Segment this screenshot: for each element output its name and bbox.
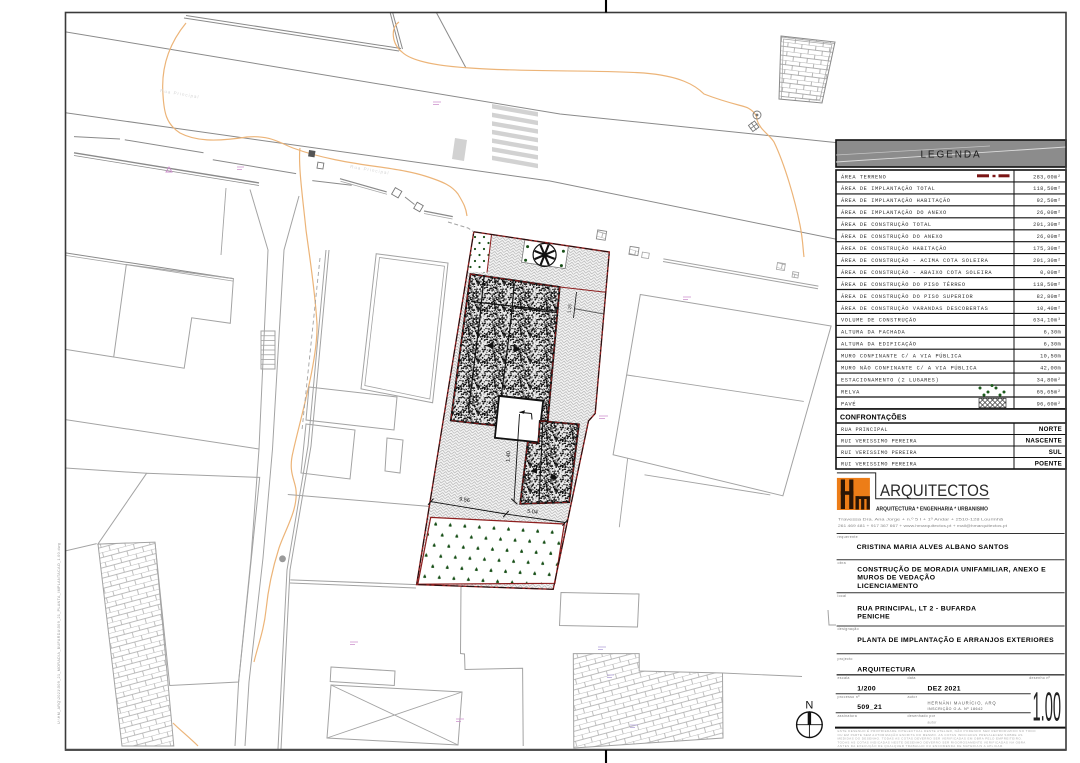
svg-text:96,60m²: 96,60m² xyxy=(1037,401,1061,407)
svg-text:ÁREA DE CONSTRUÇÃO DO PISO TÉR: ÁREA DE CONSTRUÇÃO DO PISO TÉRREO xyxy=(841,281,966,288)
svg-text:INSCRIÇÃO O.A. Nº 18642: INSCRIÇÃO O.A. Nº 18642 xyxy=(928,706,984,711)
svg-text:ANTES DA EXECUÇÃO DE QUALQUER: ANTES DA EXECUÇÃO DE QUALQUER TRABALHO O… xyxy=(838,743,1004,748)
svg-text:ARQUITECTOS: ARQUITECTOS xyxy=(880,481,989,500)
svg-text:634,10m³: 634,10m³ xyxy=(1033,318,1061,324)
svg-text:VOLUME DE CONSTRUÇÃO: VOLUME DE CONSTRUÇÃO xyxy=(841,317,917,324)
svg-text:ÁREA DE CONSTRUÇÃO VARANDAS DE: ÁREA DE CONSTRUÇÃO VARANDAS DESCOBERTAS xyxy=(841,305,988,312)
svg-text:6,30m: 6,30m xyxy=(1044,342,1061,348)
svg-text:RUA PRINCIPAL, LT 2 - BUFARDA: RUA PRINCIPAL, LT 2 - BUFARDA xyxy=(857,605,976,612)
svg-text:509_21: 509_21 xyxy=(857,704,882,711)
svg-text:RUA PRINCIPAL: RUA PRINCIPAL xyxy=(841,427,888,433)
svg-text:ARQUITECTURA: ARQUITECTURA xyxy=(857,667,916,674)
svg-text:1.40: 1.40 xyxy=(506,451,513,462)
svg-text:ALTURA DA EDIFICAÇÃO: ALTURA DA EDIFICAÇÃO xyxy=(841,341,917,348)
svg-text:82,80m²: 82,80m² xyxy=(1037,294,1061,300)
svg-text:ÁREA DE CONSTRUÇÃO DO ANEXO: ÁREA DE CONSTRUÇÃO DO ANEXO xyxy=(841,233,943,240)
svg-text:designação: designação xyxy=(838,627,859,631)
svg-text:CONSTRUÇÃO DE MORADIA UNIFAMIL: CONSTRUÇÃO DE MORADIA UNIFAMILIAR, ANEXO… xyxy=(857,564,1046,573)
svg-text:processo nº: processo nº xyxy=(838,695,861,699)
svg-text:CONFRONTAÇÕES: CONFRONTAÇÕES xyxy=(840,413,907,422)
svg-text:SUL: SUL xyxy=(1049,449,1062,456)
svg-text:1/200: 1/200 xyxy=(857,685,876,692)
svg-text:201,30m²: 201,30m² xyxy=(1033,222,1061,228)
svg-text:6,30m: 6,30m xyxy=(1044,330,1061,336)
svg-text:10,40m²: 10,40m² xyxy=(1037,306,1061,312)
svg-text:obra: obra xyxy=(838,561,846,565)
svg-text:NASCENTE: NASCENTE xyxy=(1026,438,1062,445)
svg-text:ÁREA DE CONSTRUÇÃO - ABAIXO CO: ÁREA DE CONSTRUÇÃO - ABAIXO COTA SOLEIRA xyxy=(841,269,992,276)
svg-text:U:\HM_ARQ\2021\509_21_MORADIA_: U:\HM_ARQ\2021\509_21_MORADIA_BUFARDA\50… xyxy=(57,543,61,724)
svg-text:ÁREA DE CONSTRUÇÃO DO PISO SUP: ÁREA DE CONSTRUÇÃO DO PISO SUPERIOR xyxy=(841,293,973,300)
svg-text:RELVA: RELVA xyxy=(841,389,860,395)
svg-text:CRISTINA MARIA ALVES ALBANO SA: CRISTINA MARIA ALVES ALBANO SANTOS xyxy=(857,544,1009,551)
svg-text:175,30m²: 175,30m² xyxy=(1033,246,1061,252)
svg-text:ÁREA TERRENO: ÁREA TERRENO xyxy=(841,173,886,180)
svg-text:10,50m: 10,50m xyxy=(1040,354,1061,360)
svg-text:RUI VERISSIMO PEREIRA: RUI VERISSIMO PEREIRA xyxy=(841,439,917,445)
svg-text:118,50m²: 118,50m² xyxy=(1033,186,1061,192)
svg-text:RUI VERISSIMO PEREIRA: RUI VERISSIMO PEREIRA xyxy=(841,462,917,468)
svg-text:assinatura: assinatura xyxy=(838,714,858,718)
svg-text:DEZ 2021: DEZ 2021 xyxy=(928,685,961,692)
svg-text:RUI VERISSIMO PEREIRA: RUI VERISSIMO PEREIRA xyxy=(841,450,917,456)
svg-text:ÁREA DE IMPLANTAÇÃO TOTAL: ÁREA DE IMPLANTAÇÃO TOTAL xyxy=(841,185,935,192)
svg-text:data: data xyxy=(908,676,916,680)
svg-text:autor: autor xyxy=(908,695,918,699)
svg-text:42,00m: 42,00m xyxy=(1040,366,1061,372)
svg-text:MURO CONFINANTE C/ A VIA PÚBLI: MURO CONFINANTE C/ A VIA PÚBLICA xyxy=(841,353,962,360)
svg-text:1.00: 1.00 xyxy=(1033,684,1062,730)
svg-text:Travessa Dra. Ana Jorge + n.º: Travessa Dra. Ana Jorge + n.º 5 I + 1º A… xyxy=(838,517,1004,522)
svg-text:201,30m²: 201,30m² xyxy=(1033,258,1061,264)
svg-text:requerente: requerente xyxy=(838,535,858,539)
svg-text:ARQUITECTURA * ENGENHARIA * UR: ARQUITECTURA * ENGENHARIA * URBANISMO xyxy=(876,507,989,513)
svg-text:ALTURA DA FACHADA: ALTURA DA FACHADA xyxy=(841,330,905,336)
svg-text:ESTACIONAMENTO (2 LUGARES): ESTACIONAMENTO (2 LUGARES) xyxy=(841,377,939,383)
svg-text:ÁREA DE IMPLANTAÇÃO DO ANEXO: ÁREA DE IMPLANTAÇÃO DO ANEXO xyxy=(841,209,947,216)
svg-text:118,50m²: 118,50m² xyxy=(1033,282,1061,288)
svg-text:autor: autor xyxy=(928,720,938,724)
svg-text:26,00m²: 26,00m² xyxy=(1037,234,1061,240)
svg-text:ÁREA DE IMPLANTAÇÃO HABITAÇÃO: ÁREA DE IMPLANTAÇÃO HABITAÇÃO xyxy=(841,197,951,204)
svg-text:PENICHE: PENICHE xyxy=(857,614,890,621)
svg-text:NORTE: NORTE xyxy=(1039,426,1062,433)
svg-text:MURO NÃO CONFINANTE C/ A VIA P: MURO NÃO CONFINANTE C/ A VIA PÚBLICA xyxy=(841,365,977,372)
svg-text:26,00m²: 26,00m² xyxy=(1037,210,1061,216)
svg-text:0,00m²: 0,00m² xyxy=(1040,270,1061,276)
svg-text:HERNÂNI MAURÍCIO, ARQ: HERNÂNI MAURÍCIO, ARQ xyxy=(928,700,997,705)
svg-text:PLANTA DE IMPLANTAÇÃO E ARRANJ: PLANTA DE IMPLANTAÇÃO E ARRANJOS EXTERIO… xyxy=(857,635,1054,644)
svg-text:MUROS DE VEDAÇÃO: MUROS DE VEDAÇÃO xyxy=(857,573,935,582)
svg-text:ÁREA DE CONSTRUÇÃO - ACIMA COT: ÁREA DE CONSTRUÇÃO - ACIMA COTA SOLEIRA xyxy=(841,257,989,264)
svg-text:LEGENDA: LEGENDA xyxy=(920,150,981,161)
svg-text:ÁREA DE CONSTRUÇÃO HABITAÇÃO: ÁREA DE CONSTRUÇÃO HABITAÇÃO xyxy=(841,245,947,252)
svg-text:92,50m²: 92,50m² xyxy=(1037,198,1061,204)
svg-text:283,00m²: 283,00m² xyxy=(1033,174,1061,180)
svg-text:ÁREA DE CONSTRUÇÃO TOTAL: ÁREA DE CONSTRUÇÃO TOTAL xyxy=(841,221,932,228)
svg-text:N: N xyxy=(805,700,813,712)
svg-text:desenho nº: desenho nº xyxy=(1029,676,1050,680)
svg-text:desenhado por: desenhado por xyxy=(908,714,936,718)
svg-text:local: local xyxy=(838,594,847,598)
svg-text:65,65m²: 65,65m² xyxy=(1037,389,1061,395)
svg-text:LICENCIAMENTO: LICENCIAMENTO xyxy=(857,583,918,590)
svg-text:projecto: projecto xyxy=(838,657,853,661)
svg-text:PAVÉ: PAVÉ xyxy=(841,400,856,407)
svg-text:POENTE: POENTE xyxy=(1035,461,1062,468)
svg-text:34,80m²: 34,80m² xyxy=(1037,377,1061,383)
svg-text:261 469 481 + 917 367 667 + ww: 261 469 481 + 917 367 667 + www.hmarquit… xyxy=(838,523,1008,528)
svg-text:escala: escala xyxy=(838,676,850,680)
